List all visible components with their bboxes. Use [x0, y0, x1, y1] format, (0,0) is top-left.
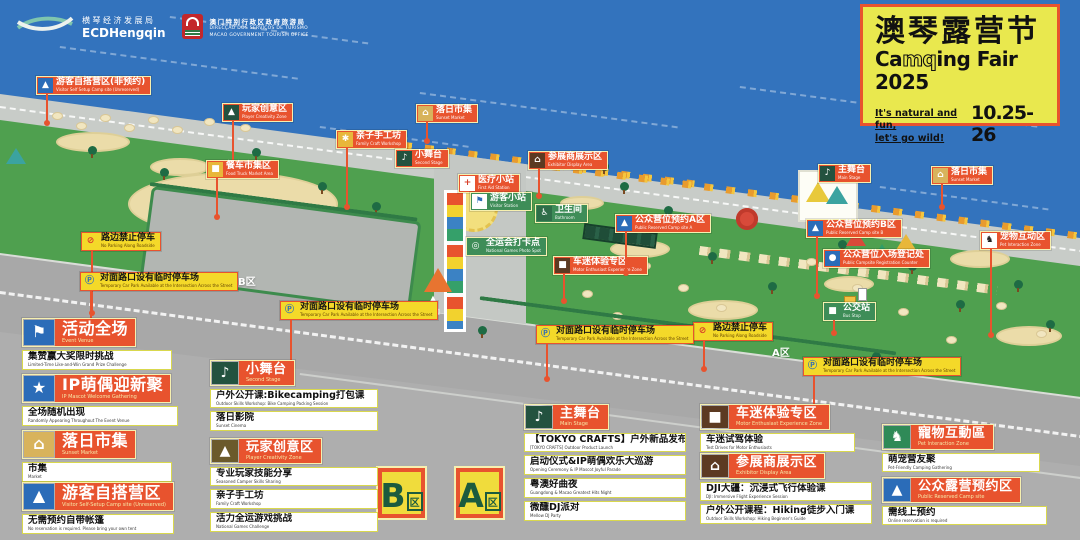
- parking-icon: Ⓟ: [82, 274, 97, 289]
- tree-icon: [1014, 280, 1023, 289]
- tree-icon: [620, 182, 629, 191]
- dog-icon: ♞: [884, 426, 910, 448]
- flag-icon: ⚑: [472, 194, 487, 209]
- legend-item-en: National Games Challenge: [216, 525, 372, 530]
- label-text: 公众营位入场登记处 Public Campsite Registration C…: [841, 250, 929, 267]
- map-label: ♪ 主舞台 Main Stage: [818, 164, 871, 183]
- legend-items: 【TOKYO CRAFTS】户外新品发布 [TOKYO CRAFTS] Outd…: [524, 433, 686, 521]
- label-text: 路边禁止停车 No Parking Along Roadside: [99, 233, 160, 250]
- legend-block: ★ IP萌偶迎新聚 IP Mascot Welcome Gathering 全场…: [22, 374, 178, 426]
- label-text: 公众营位预约A区 Public Reserved Camp site A: [633, 215, 710, 232]
- label-text: 公众营位预约B区 Public Reserved Camp site B: [824, 220, 901, 237]
- ecd-name-cn: 横琴经济发展局: [82, 15, 166, 26]
- title-en-mq: mq: [902, 47, 936, 71]
- label-pointer-stem: [346, 148, 348, 206]
- legend-head: ♪ 主舞台 Main Stage: [524, 404, 609, 430]
- label-pointer-stem: [563, 274, 565, 300]
- ecd-name-en: ECDHengqin: [82, 26, 166, 40]
- label-text: 对面路口设有临时停车场 Temporary Car Park Available…: [554, 326, 693, 343]
- market-icon: ⌂: [24, 432, 54, 457]
- mgto-name-en: MACAO GOVERNMENT TOURISM OFFICE: [210, 33, 309, 40]
- legend-items: 户外公开课:Bikecamping打包课 Outdoor Skills Work…: [210, 389, 378, 431]
- label-en: Motor Enthusiast Experience Zone: [573, 268, 642, 273]
- label-pointer-stem: [546, 343, 548, 378]
- legend-title: 玩家创意区 Player Creativity Zone: [239, 439, 321, 463]
- sand-patch: [950, 250, 1010, 268]
- tent-dot: [172, 126, 183, 134]
- legend-head: ♞ 寵物互動區 Pet Interaction Zone: [882, 424, 994, 450]
- label-en: Visitor Station: [490, 204, 526, 209]
- title-tag-row: It's natural and fun, let's go wild! 10.…: [875, 102, 1047, 146]
- tree-icon: [88, 146, 97, 155]
- legend-title: 落日市集 Sunset Market: [55, 431, 135, 458]
- label-text: 医疗小站 First Aid Station: [476, 175, 519, 192]
- parking-icon: Ⓟ: [538, 327, 553, 342]
- legend-title-en: Public Reserved Camp site: [918, 494, 1013, 500]
- stage-icon: ♪: [820, 166, 835, 181]
- label-pointer-stem: [703, 340, 705, 368]
- label-text: 路边禁止停车 No Parking Along Roadside: [711, 323, 772, 340]
- label-text: 游客小站 Visitor Station: [488, 193, 531, 210]
- tent-dot: [100, 114, 111, 122]
- legend-title: IP萌偶迎新聚 IP Mascot Welcome Gathering: [55, 375, 170, 402]
- legend-title-en: Main Stage: [560, 421, 601, 427]
- legend-items: 无需预约自带帐篷 No reservation is required. Ple…: [22, 514, 174, 534]
- legend-block: ▲ 游客自搭营区 Visitor Self-Setup Camp site (U…: [22, 482, 174, 534]
- tent-dot: [76, 122, 87, 130]
- tree-icon: [768, 282, 777, 291]
- label-pointer-stem: [232, 121, 234, 166]
- legend-item: 需线上预约 Online reservation is required: [882, 506, 1047, 526]
- legend-title: 游客自搭营区 Visitor Self-Setup Camp site (Unr…: [55, 483, 173, 510]
- legend-title-cn: 主舞台: [560, 407, 601, 421]
- bus-icon: ■: [825, 304, 840, 319]
- map-label: ⚑ 游客小站 Visitor Station: [470, 192, 532, 211]
- legend-block: ⚑ 活动全场 Event Venue 集赞赢大奖限时挑战 Limited-Tim…: [22, 318, 172, 370]
- stage-icon: ♪: [526, 406, 552, 428]
- zone-letter: B: [380, 480, 405, 511]
- label-en: Second Stage: [415, 161, 443, 166]
- legend-item: 户外公开课程：Hiking徒步入门课 Outdoor Skills Worksh…: [700, 504, 872, 524]
- zone-suffix: 区: [407, 492, 423, 511]
- label-en: Food Truck Market Area: [226, 172, 273, 177]
- observation-tower: [444, 190, 466, 332]
- label-text: 主舞台 Main Stage: [836, 165, 870, 182]
- legend-item-en: No reservation is required. Please bring…: [28, 527, 168, 532]
- map-label: ▲ 玩家创意区 Player Creativity Zone: [222, 103, 293, 122]
- legend-items: 全场随机出现 Randomly Appearing Throughout The…: [22, 406, 178, 426]
- legend-item-cn: 市集: [28, 464, 166, 475]
- legend-block: ♞ 寵物互動區 Pet Interaction Zone 萌宠营友聚 Pet-F…: [882, 424, 1040, 472]
- hand-icon: ✱: [338, 132, 353, 147]
- label-pointer-stem: [990, 249, 992, 334]
- legend-title-cn: 寵物互動區: [918, 427, 986, 441]
- legend-head: ▲ 游客自搭营区 Visitor Self-Setup Camp site (U…: [22, 482, 174, 511]
- map-label: ● 公众营位入场登记处 Public Campsite Registration…: [823, 249, 930, 268]
- stage-icon: ♪: [212, 362, 238, 384]
- legend-title-cn: 游客自搭营区: [62, 485, 166, 502]
- legend-title-en: IP Mascot Welcome Gathering: [62, 394, 163, 400]
- tent-icon: ▲: [38, 78, 53, 93]
- legend-title: 活动全场 Event Venue: [55, 319, 135, 346]
- legend-item: 启动仪式&IP萌偶欢乐大巡游 Opening Ceremony & IP Mas…: [524, 455, 686, 475]
- event-map-poster: ▲ 入口 B区A区 ▲ 游客自搭营区(非预约) Visitor Self Set…: [0, 0, 1080, 540]
- legend-item: 微醺DJ派对 Mellow DJ Party: [524, 501, 686, 521]
- legend-item: 车迷试驾体验 Test Drives for Motor Enthusiasts: [700, 433, 855, 453]
- map-label: ▲ 游客自搭营区(非预约) Visitor Self Setup Camp si…: [36, 76, 151, 95]
- legend-item-en: Outdoor Skills Workshop: Hiking Beginner…: [706, 517, 866, 522]
- legend-title-cn: 小舞台: [246, 363, 287, 377]
- tent-dot: [678, 284, 689, 292]
- legend-block: ♪ 小舞台 Second Stage 户外公开课:Bikecamping打包课 …: [210, 360, 378, 431]
- legend-items: 车迷试驾体验 Test Drives for Motor Enthusiasts: [700, 433, 855, 453]
- map-label: ✱ 亲子手工坊 Family Craft Workshop: [336, 130, 407, 149]
- jeep-icon: ■: [555, 258, 570, 273]
- bus-stop-sign: [858, 288, 867, 301]
- legend-items: 集赞赢大奖限时挑战 Limited-Time Like-and-Win Gran…: [22, 350, 172, 370]
- legend-item-cn: 需线上预约: [888, 508, 1041, 519]
- legend-title-cn: 公众露营预约区: [918, 480, 1013, 494]
- map-label: Ⓟ 对面路口设有临时停车场 Temporary Car Park Availab…: [536, 325, 694, 344]
- cross-icon: +: [460, 176, 475, 191]
- legend-items: 需线上预约 Online reservation is required: [882, 506, 1047, 526]
- tent-dot: [946, 336, 957, 344]
- label-en: Player Creativity Zone: [242, 115, 287, 120]
- legend-item-en: Opening Ceremony & IP Mascot Joyful Para…: [530, 468, 680, 473]
- label-pointer-stem: [426, 122, 428, 140]
- legend-item-cn: 【TOKYO CRAFTS】户外新品发布: [530, 435, 680, 446]
- tent-icon: ▲: [212, 440, 238, 462]
- legend-title: 参展商展示区 Exhibitor Display Area: [729, 454, 824, 478]
- legend-title: 公众露营预约区 Public Reserved Camp site: [911, 478, 1020, 502]
- legend-item: 【TOKYO CRAFTS】户外新品发布 [TOKYO CRAFTS] Outd…: [524, 433, 686, 453]
- jeep-icon: ■: [702, 406, 728, 428]
- sand-patch: [996, 326, 1062, 346]
- legend-item-en: Seasoned Camper Skills Sharing: [216, 480, 372, 485]
- label-en: National Games Photo Spot: [486, 249, 541, 254]
- mgto-stripes-icon: [185, 30, 200, 36]
- legend-head: ⌂ 参展商展示区 Exhibitor Display Area: [700, 453, 825, 479]
- label-en: Family Craft Workshop: [356, 142, 401, 147]
- label-text: 玩家创意区 Player Creativity Zone: [240, 104, 292, 121]
- tent-dot: [898, 308, 909, 316]
- tent-icon: ▲: [24, 484, 54, 509]
- legend-item-en: Family Craft Workshop: [216, 502, 372, 507]
- lantern-icon: ⌂: [530, 153, 545, 168]
- legend-block: ♪ 主舞台 Main Stage 【TOKYO CRAFTS】户外新品发布 [T…: [524, 404, 686, 521]
- legend-title-en: Second Stage: [246, 377, 287, 383]
- label-pointer-stem: [816, 237, 818, 295]
- label-pointer-stem: [216, 178, 218, 216]
- mgto-text: 澳门特别行政区政府旅游局 DIRECÇÃO DOS SERVIÇOS DE TU…: [210, 16, 309, 40]
- label-pointer-stem: [46, 94, 48, 122]
- map-label: ⌂ 落日市集 Sunset Market: [931, 166, 993, 185]
- road-zone-text-value: B区: [238, 277, 256, 288]
- map-label: ■ 公交站 Bus Stop: [823, 302, 876, 321]
- mgto-name-pt: DIRECÇÃO DOS SERVIÇOS DE TURISMO: [210, 26, 309, 33]
- shade-sail: [6, 148, 26, 164]
- legend-title-cn: 参展商展示区: [736, 456, 817, 470]
- registration-icon: ●: [825, 251, 840, 266]
- label-text: 公交站 Bus Stop: [841, 303, 875, 320]
- label-pointer-stem: [625, 232, 627, 272]
- legend-items: DJI大疆：沉浸式飞行体验课 DJI: Immersive Flight Exp…: [700, 482, 872, 524]
- legend-item: 集赞赢大奖限时挑战 Limited-Time Like-and-Win Gran…: [22, 350, 172, 370]
- label-text: 落日市集 Sunset Market: [434, 105, 477, 122]
- zone-suffix: 区: [485, 492, 501, 511]
- legend-title: 车迷体验专区 Motor Enthusiast Experience Zone: [729, 405, 829, 429]
- label-text: 餐车市集区 Food Truck Market Area: [224, 161, 278, 178]
- map-label: Ⓟ 对面路口设有临时停车场 Temporary Car Park Availab…: [80, 272, 238, 291]
- map-label: ♪ 小舞台 Second Stage: [395, 149, 449, 168]
- event-title-en: Camqing Fair 2025: [875, 48, 1047, 94]
- legend-item-en: Outdoor Skills Workshop: Bike Camping Pa…: [216, 402, 372, 407]
- legend-title-cn: IP萌偶迎新聚: [62, 377, 163, 394]
- zone-badge: B 区: [378, 468, 425, 518]
- map-label: Ⓟ 对面路口设有临时停车场 Temporary Car Park Availab…: [280, 301, 438, 320]
- label-en: No Parking Along Roadside: [713, 334, 767, 339]
- legend-item: DJI大疆：沉浸式飞行体验课 DJI: Immersive Flight Exp…: [700, 482, 872, 502]
- legend-head: ★ IP萌偶迎新聚 IP Mascot Welcome Gathering: [22, 374, 171, 403]
- tree-icon: [252, 148, 261, 157]
- label-text: 对面路口设有临时停车场 Temporary Car Park Available…: [98, 273, 237, 290]
- tent-dot: [52, 112, 63, 120]
- restroom-icon: ♿: [537, 206, 552, 221]
- label-en: No Parking Along Roadside: [101, 244, 155, 249]
- label-en: Temporary Car Park Available at the Inte…: [823, 369, 955, 374]
- flag-icon: ⚑: [24, 320, 54, 345]
- label-text: 宠物互动区 Pet Interaction Zone: [998, 232, 1050, 249]
- map-label: ■ 车迷体验专区 Motor Enthusiast Experience Zon…: [553, 256, 648, 275]
- map-label: ▲ 公众营位预约B区 Public Reserved Camp site B: [806, 219, 902, 238]
- header-logos: 横琴经济发展局 ECDHengqin 澳门特别行政区政府旅游局 DIRECÇÃO…: [16, 14, 309, 40]
- legend-item: 户外公开课:Bikecamping打包课 Outdoor Skills Work…: [210, 389, 378, 409]
- tent-dot: [240, 124, 251, 132]
- tent-icon: ▲: [884, 479, 910, 501]
- map-label: ▲ 公众营位预约A区 Public Reserved Camp site A: [615, 214, 711, 233]
- legend-head: ■ 车迷体验专区 Motor Enthusiast Experience Zon…: [700, 404, 830, 430]
- map-label: ♿ 卫生间 Bathroom: [535, 204, 588, 223]
- tent-dot: [148, 116, 159, 124]
- tree-icon: [1046, 320, 1055, 329]
- tent-dot: [1036, 330, 1047, 338]
- legend-item-en: Sunset Cinema: [216, 424, 372, 429]
- title-en-pre: Ca: [875, 47, 902, 71]
- label-text: 小舞台 Second Stage: [413, 150, 448, 167]
- tent-dot: [716, 304, 727, 312]
- legend-item-en: [TOKYO CRAFTS] Outdoor Product Launch: [530, 446, 680, 451]
- market-icon: ⌂: [418, 106, 433, 121]
- road-zone-text: B区: [238, 273, 256, 288]
- label-pointer-stem: [538, 169, 540, 195]
- label-text: 卫生间 Bathroom: [553, 205, 587, 222]
- tent-icon: ▲: [808, 221, 823, 236]
- legend-item-en: Limited-Time Like-and-Win Grand Prize Ch…: [28, 363, 166, 368]
- legend-item-cn: 户外公开课:Bikecamping打包课: [216, 391, 372, 402]
- legend-head: ▲ 公众露营预约区 Public Reserved Camp site: [882, 477, 1021, 503]
- mgto-logo: [182, 14, 203, 39]
- legend-head: ⚑ 活动全场 Event Venue: [22, 318, 136, 347]
- legend-title-en: Motor Enthusiast Experience Zone: [736, 421, 822, 427]
- legend-item-en: Online reservation is required: [888, 519, 1041, 524]
- label-en: Public Reserved Camp site A: [635, 226, 705, 231]
- legend-item-cn: 车迷试驾体验: [706, 435, 849, 446]
- label-en: Public Reserved Camp site B: [826, 231, 896, 236]
- legend-title: 寵物互動區 Pet Interaction Zone: [911, 425, 993, 449]
- legend-item: 萌宠营友聚 Pet-Friendly Camping Gathering: [882, 453, 1040, 473]
- legend-item: 市集 Market: [22, 462, 172, 482]
- legend-item-en: Guangdong & Macao Greatest Hits Night: [530, 491, 680, 496]
- tree-icon: [478, 326, 487, 335]
- label-text: 全运会打卡点 National Games Photo Spot: [484, 238, 546, 255]
- rings-icon: ◎: [468, 239, 483, 254]
- legend-head: ▲ 玩家创意区 Player Creativity Zone: [210, 438, 322, 464]
- label-en: Bus Stop: [843, 314, 870, 319]
- legend-item: 活力全运游戏挑战 National Games Challenge: [210, 512, 378, 532]
- label-en: Sunset Market: [436, 116, 472, 121]
- mgto-name-cn: 澳门特别行政区政府旅游局: [210, 16, 309, 26]
- stage-icon: ♪: [397, 151, 412, 166]
- map-label: ⌂ 参展商展示区 Exhibitor Display Area: [528, 151, 608, 170]
- legend-item-en: DJI: Immersive Flight Experience Session: [706, 495, 866, 500]
- legend-item-en: Market: [28, 475, 166, 480]
- map-label: ◎ 全运会打卡点 National Games Photo Spot: [466, 237, 547, 256]
- zone-badge: A 区: [456, 468, 503, 518]
- dog-icon: ♞: [982, 233, 997, 248]
- legend-item-en: Mellow DJ Party: [530, 514, 680, 519]
- label-en: Visitor Self Setup Camp site (Unreserved…: [56, 88, 145, 93]
- legend-title-cn: 活动全场: [62, 321, 128, 338]
- legend-items: 专业玩家技能分享 Seasoned Camper Skills Sharing …: [210, 467, 378, 532]
- label-en: First Aid Station: [478, 186, 514, 191]
- legend-block: ▲ 公众露营预约区 Public Reserved Camp site 需线上预…: [882, 477, 1047, 525]
- legend-block: ⌂ 落日市集 Sunset Market 市集 Market: [22, 430, 172, 482]
- tree-icon: [708, 252, 717, 261]
- event-tagline: It's natural and fun, let's go wild!: [875, 108, 963, 146]
- label-text: 对面路口设有临时停车场 Temporary Car Park Available…: [821, 358, 960, 375]
- legend-title: 小舞台 Second Stage: [239, 361, 294, 385]
- truck-icon: ■: [208, 162, 223, 177]
- map-label: ⊘ 路边禁止停车 No Parking Along Roadside: [81, 232, 161, 251]
- legend-title: 主舞台 Main Stage: [553, 405, 608, 429]
- zone-letter: A: [458, 480, 484, 511]
- legend-head: ♪ 小舞台 Second Stage: [210, 360, 295, 386]
- label-text: 亲子手工坊 Family Craft Workshop: [354, 131, 406, 148]
- legend-item: 落日影院 Sunset Cinema: [210, 411, 378, 431]
- parking-icon: Ⓟ: [282, 303, 297, 318]
- no-parking-icon: ⊘: [83, 234, 98, 249]
- map-label: ⊘ 路边禁止停车 No Parking Along Roadside: [693, 322, 773, 341]
- star-icon: ★: [24, 376, 54, 401]
- legend-item: 无需预约自带帐篷 No reservation is required. Ple…: [22, 514, 174, 534]
- ecd-text: 横琴经济发展局 ECDHengqin: [82, 15, 166, 40]
- label-en: Temporary Car Park Available at the Inte…: [300, 313, 432, 318]
- label-pointer-stem: [941, 184, 943, 206]
- legend-item-cn: 专业玩家技能分享: [216, 469, 372, 480]
- event-title-box: 澳琴露营节 Camqing Fair 2025 It's natural and…: [860, 4, 1060, 126]
- map-label: Ⓟ 对面路口设有临时停车场 Temporary Car Park Availab…: [803, 357, 961, 376]
- tent-dot: [996, 302, 1007, 310]
- mgto-dome-icon: [186, 17, 199, 26]
- legend-item-en: Randomly Appearing Throughout The Event …: [28, 419, 172, 424]
- tent-dot: [204, 118, 215, 126]
- map-label: + 医疗小站 First Aid Station: [458, 174, 520, 193]
- label-pointer-stem: [833, 320, 835, 332]
- label-text: 参展商展示区 Exhibitor Display Area: [546, 152, 607, 169]
- parking-icon: Ⓟ: [805, 359, 820, 374]
- label-en: Public Campsite Registration Counter: [843, 261, 924, 266]
- legend-item: 粤澳好曲夜 Guangdong & Macao Greatest Hits Ni…: [524, 478, 686, 498]
- legend-title-cn: 车迷体验专区: [736, 407, 822, 421]
- label-text: 车迷体验专区 Motor Enthusiast Experience Zone: [571, 257, 647, 274]
- legend-item: 全场随机出现 Randomly Appearing Throughout The…: [22, 406, 178, 426]
- label-en: Sunset Market: [951, 178, 987, 183]
- legend-items: 萌宠营友聚 Pet-Friendly Camping Gathering: [882, 453, 1040, 473]
- tagline-line2: let's go wild!: [875, 133, 963, 146]
- legend-item: 亲子手工坊 Family Craft Workshop: [210, 489, 378, 509]
- map-label: ♞ 宠物互动区 Pet Interaction Zone: [980, 231, 1051, 250]
- label-en: Bathroom: [555, 216, 582, 221]
- stage-sail: [826, 186, 848, 204]
- legend-title-en: Pet Interaction Zone: [918, 441, 986, 447]
- entrance-tent: [424, 268, 452, 292]
- ecd-hengqin-logo: [16, 14, 74, 34]
- legend-title-en: Sunset Market: [62, 450, 128, 456]
- road-zone-text: A区: [772, 344, 790, 359]
- tagline-line1: It's natural and fun,: [875, 108, 963, 134]
- tent-icon: ▲: [617, 216, 632, 231]
- legend-item: 专业玩家技能分享 Seasoned Camper Skills Sharing: [210, 467, 378, 487]
- legend-item-cn: DJI大疆：沉浸式飞行体验课: [706, 484, 866, 495]
- event-title-cn: 澳琴露营节: [875, 15, 1047, 48]
- legend-block: ⌂ 参展商展示区 Exhibitor Display Area DJI大疆：沉浸…: [700, 453, 872, 524]
- no-parking-icon: ⊘: [695, 324, 710, 339]
- label-en: Temporary Car Park Available at the Inte…: [556, 337, 688, 342]
- legend-head: ⌂ 落日市集 Sunset Market: [22, 430, 136, 459]
- label-text: 落日市集 Sunset Market: [949, 167, 992, 184]
- map-label: ⌂ 落日市集 Sunset Market: [416, 104, 478, 123]
- legend-title-en: Visitor Self-Setup Camp site (Unreserved…: [62, 502, 166, 508]
- legend-title-en: Player Creativity Zone: [246, 455, 314, 461]
- legend-title-cn: 玩家创意区: [246, 441, 314, 455]
- market-icon: ⌂: [933, 168, 948, 183]
- legend-title-en: Exhibitor Display Area: [736, 470, 817, 476]
- lantern-icon: ⌂: [702, 455, 728, 477]
- label-text: 游客自搭营区(非预约) Visitor Self Setup Camp site…: [54, 77, 150, 94]
- label-en: Pet Interaction Zone: [1000, 243, 1045, 248]
- tree-icon: [160, 168, 169, 177]
- tent-icon: ▲: [224, 105, 239, 120]
- label-en: Temporary Car Park Available at the Inte…: [100, 284, 232, 289]
- road-zone-text-value: A区: [772, 348, 790, 359]
- legend-item-cn: 萌宠营友聚: [888, 455, 1034, 466]
- legend-block: ▲ 玩家创意区 Player Creativity Zone 专业玩家技能分享 …: [210, 438, 378, 532]
- legend-item-en: Test Drives for Motor Enthusiasts: [706, 446, 849, 451]
- tree-icon: [956, 300, 965, 309]
- tent-dot: [124, 124, 135, 132]
- legend-items: 市集 Market: [22, 462, 172, 482]
- tree-icon: [372, 202, 381, 211]
- tent-dot: [582, 290, 593, 298]
- legend-title-cn: 落日市集: [62, 433, 128, 450]
- map-label: ■ 餐车市集区 Food Truck Market Area: [206, 160, 279, 179]
- label-en: Exhibitor Display Area: [548, 163, 602, 168]
- red-canopy-tent: [736, 208, 758, 230]
- event-dates: 10.25- 26: [971, 102, 1047, 146]
- label-en: Main Stage: [838, 176, 865, 181]
- legend-item-en: Pet-Friendly Camping Gathering: [888, 466, 1034, 471]
- tree-icon: [318, 182, 327, 191]
